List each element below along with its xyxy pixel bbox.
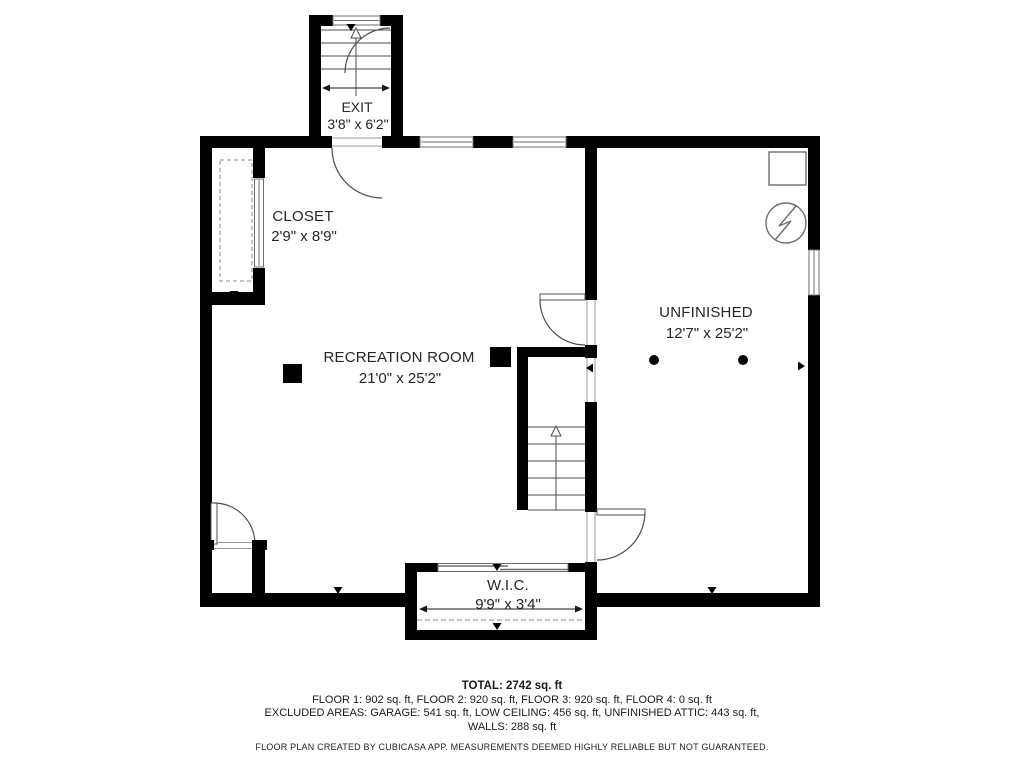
- wic-dims: 9'9" x 3'4": [475, 596, 541, 613]
- plan-summary: TOTAL: 2742 sq. ft FLOOR 1: 902 sq. ft, …: [0, 680, 1024, 752]
- round-post-right: [738, 355, 748, 365]
- closet-shelf-dashed: [220, 160, 252, 281]
- exit-dims: 3'8" x 6'2": [327, 116, 388, 132]
- exit-label: EXIT: [341, 99, 373, 115]
- unfinished-label: UNFINISHED: [659, 304, 753, 321]
- wic-label: W.I.C.: [487, 577, 529, 594]
- top-wall-window-right: [513, 137, 566, 147]
- alcove-door: [211, 503, 255, 549]
- center-stair-up-arrow-icon: [551, 426, 561, 510]
- center-stairwell: [517, 347, 585, 510]
- square-post-left: [283, 364, 302, 383]
- unfinished-lower-door: [597, 509, 645, 560]
- walls-area: WALLS: 288 sq. ft: [0, 721, 1024, 735]
- floor-areas: FLOOR 1: 902 sq. ft, FLOOR 2: 920 sq. ft…: [0, 694, 1024, 708]
- exit-top-window: [333, 16, 380, 25]
- closet-label: CLOSET: [272, 208, 333, 225]
- disclaimer: FLOOR PLAN CREATED BY CUBICASA APP. MEAS…: [0, 742, 1024, 752]
- rec-room-top-door: [332, 138, 382, 198]
- square-post-center: [490, 347, 511, 367]
- total-area: TOTAL: 2742 sq. ft: [0, 680, 1024, 694]
- unfinished-dims: 12'7" x 25'2": [666, 325, 748, 342]
- wic-sliding-door: [438, 564, 568, 572]
- exit-stair-up-arrow-icon: [351, 28, 361, 96]
- floor-plan-drawing: EXIT 3'8" x 6'2" CLOSET 2'9" x 8'9" RECR…: [0, 0, 1024, 768]
- floor-plan-page: EXIT 3'8" x 6'2" CLOSET 2'9" x 8'9" RECR…: [0, 0, 1024, 768]
- closet-dims: 2'9" x 8'9": [271, 228, 337, 245]
- rec-unfinished-upper-door: [540, 294, 585, 345]
- closet-sliding-door: [255, 179, 264, 267]
- right-wall-window: [809, 250, 819, 295]
- excluded-areas: EXCLUDED AREAS: GARAGE: 541 sq. ft, LOW …: [0, 707, 1024, 721]
- fixture-square: [769, 152, 806, 185]
- exit-top-door-swing: [345, 28, 390, 73]
- recreation-room-label: RECREATION ROOM: [323, 349, 474, 366]
- round-post-left: [649, 355, 659, 365]
- recreation-room-dims: 21'0" x 25'2": [359, 370, 441, 387]
- electrical-panel-icon: [766, 203, 806, 243]
- top-wall-window-left: [420, 137, 473, 147]
